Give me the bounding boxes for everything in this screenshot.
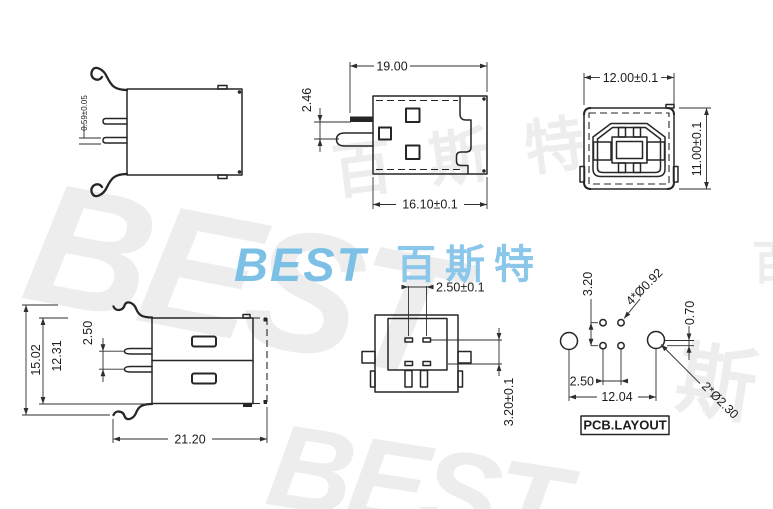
corner-mark (264, 318, 268, 322)
corner-accent (667, 182, 674, 189)
dim-overall-length: 21.20 (174, 433, 205, 447)
corner-mark (264, 400, 268, 404)
view-side: 0.59±0.05 (79, 68, 242, 196)
side-tab-left (362, 352, 375, 364)
view-top: 19.00 2.46 16.10±0.1 (300, 60, 487, 212)
dim-body-height: 12.31 (50, 340, 64, 371)
top-tab (666, 105, 674, 109)
view-front: 12.00±0.1 11.00±0.1 (580, 71, 711, 189)
spring-clip-top (91, 68, 127, 90)
insulator (388, 319, 447, 371)
pin-hole (618, 320, 624, 326)
shield-window (406, 146, 420, 160)
dim-pin-pitch: 2.50±0.1 (436, 281, 485, 295)
solder-tab (350, 117, 373, 123)
latch-recess-right (647, 142, 665, 160)
side-tab-right (674, 167, 679, 183)
shield-window (406, 109, 420, 123)
pin (103, 119, 127, 125)
contact-blade (337, 133, 374, 146)
side-tab-right (458, 352, 471, 364)
side-bump-right (458, 371, 463, 387)
pin (125, 367, 153, 373)
dim-mount-pitch: 12.04 (601, 390, 632, 404)
side-tab-left (580, 167, 585, 183)
spring-clip-bottom (114, 404, 153, 419)
dim-mount-holes: 2*Ø2.30 (699, 379, 741, 421)
dim-row-pitch: 3.20±0.1 (502, 378, 516, 427)
shield-bump-top (218, 86, 227, 90)
dim-hole-offset: 0.70 (683, 301, 697, 325)
view-side-mount: 15.02 12.31 2.50 21.20 (22, 302, 267, 446)
view-pcb-layout: 3.20 4*Ø0.92 0.70 2.50 12.04 (561, 266, 742, 435)
dim-height: 11.00±0.1 (690, 122, 704, 177)
corner-mark (238, 170, 242, 174)
latch-notch (457, 96, 472, 174)
view-rear: 2.50±0.1 3.20±0.1 (362, 281, 516, 427)
tongue-inner (617, 142, 643, 159)
dim-pin-offset: 2.46 (300, 88, 314, 112)
corner-accent (584, 108, 591, 115)
drawing-canvas: 0.59±0.05 19.00 2. (0, 0, 773, 509)
dim-pin-pitch: 2.50 (81, 321, 95, 345)
shield-slot (192, 337, 216, 347)
corner-accent (667, 108, 674, 115)
corner-mark (482, 97, 485, 100)
contact-slot (619, 163, 626, 173)
pin-hole (600, 343, 606, 349)
shield-bump-top (243, 315, 250, 319)
pin (125, 349, 153, 355)
corner-mark (482, 169, 485, 172)
contact-pad (423, 362, 431, 366)
corner-accent (584, 182, 591, 189)
pin (103, 138, 127, 144)
dim-row-pitch: 3.20 (581, 272, 595, 296)
corner-mark (238, 90, 242, 94)
pin-hole (618, 343, 624, 349)
dim-width: 12.00±0.1 (603, 71, 659, 85)
contact-slot (619, 128, 626, 138)
shield-bump-bottom (218, 175, 227, 179)
contact-pad (423, 338, 431, 342)
connector-body (127, 89, 242, 175)
spring-clip-bottom (91, 174, 127, 196)
dim-pin-thickness: 0.59±0.05 (80, 95, 89, 131)
dim-pin-holes: 4*Ø0.92 (623, 266, 665, 308)
pin-hole (600, 320, 606, 326)
pcb-layout-label: PCB.LAYOUT (583, 418, 666, 433)
contact-pad (405, 362, 413, 366)
leg (405, 371, 412, 388)
leg (421, 371, 428, 388)
latch-recess-left (594, 142, 612, 160)
dim-shell-length: 16.10±0.1 (402, 198, 458, 212)
mount-hole (561, 333, 578, 350)
contact-slot (634, 163, 641, 173)
dim-overall-length: 19.00 (376, 60, 407, 74)
usb-b-mouth-outer (593, 124, 665, 177)
shield-window (379, 128, 391, 140)
contact-slot (634, 128, 641, 138)
shield-bump-bottom (243, 404, 252, 408)
dim-overall-height: 15.02 (29, 344, 43, 375)
spring-clip-top (114, 302, 153, 317)
dim-pin-pitch: 2.50 (570, 375, 594, 389)
contact-pad (405, 338, 413, 342)
usb-b-mouth-inner (598, 128, 661, 173)
side-bump-left (371, 371, 376, 387)
drawing-sheet: BEST 百 斯 特 BEST 斯 百 BEST 百斯特 0.59±0.05 (0, 0, 773, 509)
shield-slot (192, 374, 216, 384)
